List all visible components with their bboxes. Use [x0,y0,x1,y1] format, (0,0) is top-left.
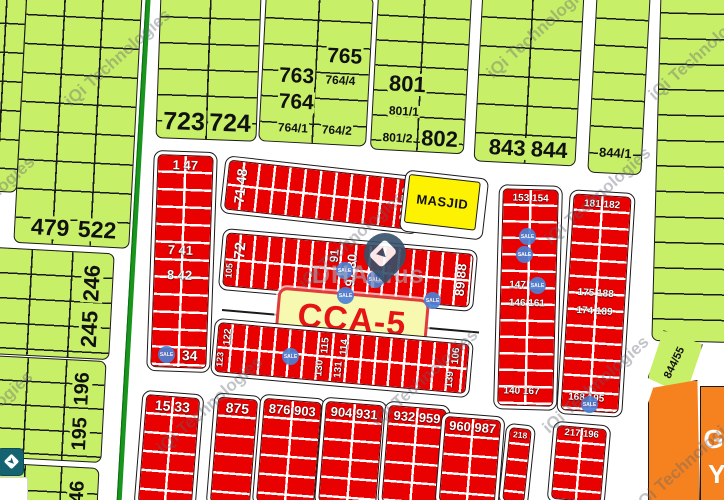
plot-label: 844/55 [662,345,688,382]
plot-label: 904 931 [330,405,378,422]
plot-label: 801/2 [381,131,414,145]
plot-label: 932 959 [393,409,441,426]
red-strip-217-196[interactable]: 217 196 [547,421,612,500]
plot-label: 479 [29,215,71,240]
plot-label: 7 41 [168,243,194,257]
plot-label: 843 [487,136,527,160]
navigation-arrow-glyph: ➤ [4,454,20,470]
masjid-block[interactable]: MASJID [399,169,489,240]
plot-label: 8 42 [167,268,193,282]
green-block-843-844[interactable]: 843 844 [474,0,585,167]
graveyard-label-line2: YA [708,461,724,487]
plot-cells [561,194,630,412]
plot-label: 875 [225,400,249,416]
plot-label: 146 161 [509,299,545,310]
green-block-right-column[interactable] [651,0,724,343]
plot-label: 764/2 [321,123,354,137]
plot-label: 34 [182,348,198,363]
navigation-icon[interactable]: ➤ [0,448,24,476]
green-block-801-802[interactable]: 801 801/1 801/2 802 [370,0,472,154]
green-block-763-765[interactable]: 765 763 764/4 764 764/1 764/2 [258,0,374,147]
green-block-245-246[interactable]: 246 245 [0,247,115,360]
red-strip-153-154[interactable]: 153 154 147 160 146 161 140 167 [493,184,563,411]
plot-label: 71 48 [232,168,250,204]
plot-label: 764 [277,91,315,114]
plot-label: 764/4 [324,73,357,87]
plot-label: 802 [420,127,460,151]
green-block-195-196[interactable]: 196 195 [0,355,107,463]
plot-label: 522 [76,218,118,243]
plot-label: 801 [387,72,427,96]
plot-label: 115 [320,337,331,354]
plot-label: 174 189 [576,306,613,318]
plot-label: 765 [326,45,364,68]
plot-label: 46 [67,479,88,500]
green-block-723-724[interactable]: 723 724 [155,0,261,142]
plot-label: 876 903 [268,402,316,419]
plot-label: 15 33 [154,398,190,415]
plot-label: 130 [314,359,325,376]
plot-label: 114 [339,339,350,356]
sale-marker[interactable]: SALE [581,396,598,413]
plot-label: 764/1 [277,121,310,135]
plot-label: 122 [223,328,234,345]
red-strip-1-47[interactable]: 1 47 7 41 8 42 34 [146,150,218,373]
plot-label: 139 [445,371,456,388]
plot-label: 960 987 [449,419,497,436]
plot-cells [215,323,468,393]
green-block-479-522[interactable]: 479 522 [13,0,142,249]
plot-label: 106 [451,347,462,364]
red-strip-960-987[interactable]: 960 987 [434,412,505,500]
sale-marker[interactable]: SALE [282,348,299,365]
graveyard-block-left[interactable] [648,380,700,500]
map-control-box[interactable] [0,477,28,500]
red-strip-181-182[interactable]: 181 182 175 188 174 189 168 195 [556,189,636,418]
sale-marker[interactable]: SALE [529,277,546,294]
sale-marker[interactable]: SALE [519,228,536,245]
plot-label: 175 188 [577,288,614,300]
green-block-844-1[interactable]: 844/1 [587,0,650,175]
plot-label: 763 [278,65,316,88]
plot-label: 801/1 [388,104,421,118]
plot-label: 131 [333,361,344,378]
plot-label: 196 [71,371,93,407]
logo-map-pin-icon: ▶ [362,233,408,297]
plot-map: 479 522 246 245 196 195 46 723 724 765 7… [0,0,724,500]
plot-label: 105 [224,263,234,279]
plot-label: 724 [208,111,253,138]
plot-label: 723 [162,109,207,136]
plot-label: 153 154 [512,194,548,205]
plot-cells [14,0,141,248]
red-strip-15-33[interactable]: 15 33 [134,390,205,500]
plot-label: 140 167 [503,386,539,397]
graveyard-label-line1: GR [704,426,724,452]
sale-marker[interactable]: SALE [158,346,175,363]
plot-label: 181 182 [584,199,621,211]
plot-label: 218 [513,430,528,440]
graveyard-block-right[interactable]: GR YA [700,386,724,500]
plot-cells [652,0,724,342]
plot-label: 123 [215,352,225,368]
plot-label: 245 [78,309,102,349]
plot-label: 89 88 [453,263,469,297]
plot-cells [225,161,419,230]
plot-label: 1 47 [172,158,198,172]
plot-label: 72 [232,242,248,260]
sale-marker[interactable]: SALE [424,292,441,309]
sale-marker[interactable]: SALE [516,246,533,263]
red-strip-904-931[interactable]: 904 931 [314,397,388,500]
plot-label: 844/1 [598,146,633,161]
plot-label: 844 [529,138,569,162]
red-strip-122-123[interactable]: 122 123 115 130 114 131 106 139 [210,318,474,398]
plot-label: 195 [69,416,91,452]
red-strip-71-48[interactable]: 71 48 60 59 [219,155,424,235]
plot-label: 246 [80,263,104,303]
plot-cells [151,155,212,368]
